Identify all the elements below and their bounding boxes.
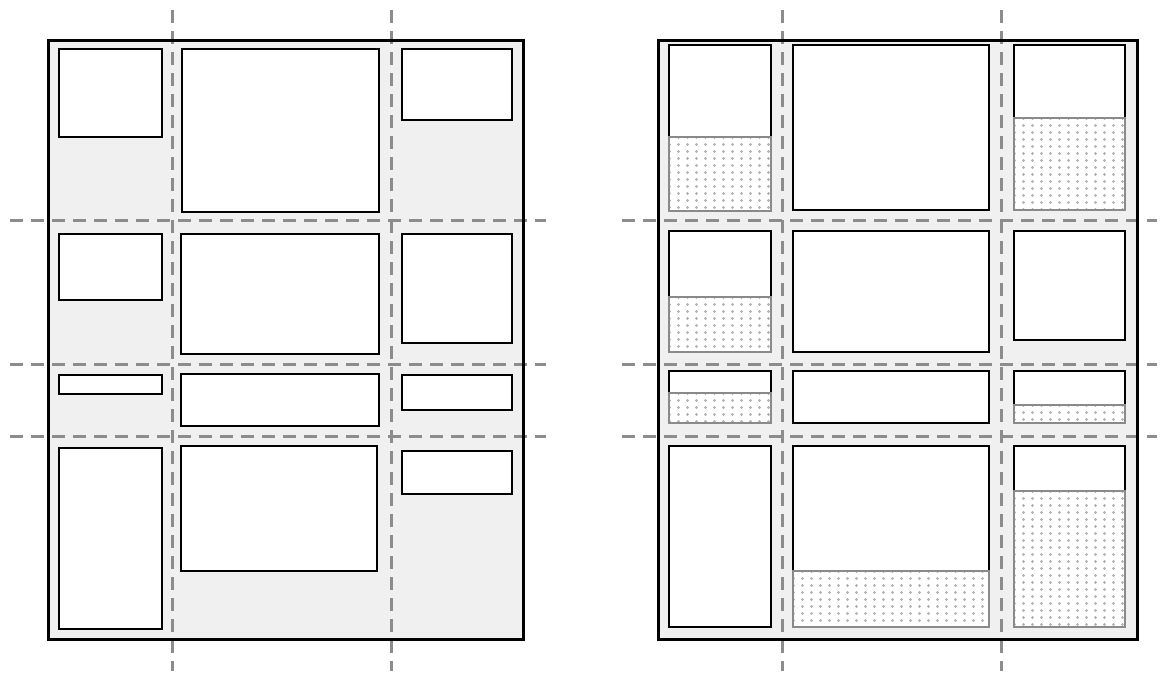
grid-item-content-box [181,48,380,213]
grid-item-r3c1 [668,370,772,424]
grid-item-content-box [1013,230,1126,341]
grid-item-extra-space-dotted [1013,404,1126,424]
grid-track-line-vertical [1000,10,1003,671]
grid-item-content-box [180,233,380,355]
grid-item-r3c2 [792,370,990,424]
grid-item-r2c1 [668,230,772,353]
grid-item-r3c1 [58,374,163,395]
grid-item-extra-space-dotted [668,136,772,212]
grid-item-extra-space-dotted [792,570,990,628]
grid-item-r3c3 [1013,370,1126,424]
grid-item-content-box [180,445,378,572]
grid-track-line-horizontal [10,219,546,222]
grid-item-r1c1 [58,48,163,138]
grid-item-r1c3 [1013,44,1126,211]
grid-item-r1c2 [181,48,380,213]
grid-item-content-box [58,48,163,138]
grid-item-r1c1 [668,44,772,212]
grid-track-line-horizontal [622,435,1157,438]
grid-item-r1c3 [401,48,513,121]
grid-item-r4c3 [401,450,513,495]
grid-item-r3c3 [401,374,513,411]
grid-item-content-box [668,230,772,296]
grid-track-line-vertical [171,10,174,671]
grid-item-r4c1 [668,445,772,628]
grid-item-r3c2 [180,373,380,427]
grid-item-content-box [792,370,990,424]
grid-track-line-horizontal [622,219,1157,222]
grid-item-extra-space-dotted [1013,117,1126,211]
grid-item-content-box [401,233,513,344]
grid-item-content-box [792,445,990,570]
grid-item-extra-space-dotted [668,296,772,353]
grid-track-line-horizontal [10,363,546,366]
grid-item-content-box [1013,44,1126,117]
grid-item-content-box [58,233,163,301]
grid-item-r2c2 [792,230,990,353]
grid-item-r2c2 [180,233,380,355]
grid-item-r2c3 [1013,230,1126,341]
grid-item-content-box [668,370,772,392]
grid-track-line-vertical [781,10,784,671]
grid-item-r1c2 [792,44,990,211]
grid-item-content-box [668,445,772,628]
grid-track-line-horizontal [10,435,546,438]
grid-item-r4c3 [1013,445,1126,628]
grid-track-line-horizontal [622,363,1157,366]
grid-item-content-box [58,447,163,630]
grid-item-r4c2 [180,445,378,572]
grid-item-content-box [401,374,513,411]
grid-item-r4c1 [58,447,163,630]
grid-item-extra-space-dotted [1013,490,1126,628]
grid-item-content-box [58,374,163,395]
grid-item-content-box [792,44,990,211]
grid-item-r2c1 [58,233,163,301]
grid-item-r2c3 [401,233,513,344]
grid-item-content-box [792,230,990,353]
grid-item-content-box [401,450,513,495]
grid-item-content-box [1013,445,1126,490]
grid-item-content-box [401,48,513,121]
diagram-stage [0,0,1171,679]
grid-item-content-box [180,373,380,427]
grid-item-extra-space-dotted [668,392,772,424]
grid-track-line-vertical [390,10,393,671]
grid-item-content-box [668,44,772,136]
grid-item-content-box [1013,370,1126,404]
grid-item-r4c2 [792,445,990,628]
